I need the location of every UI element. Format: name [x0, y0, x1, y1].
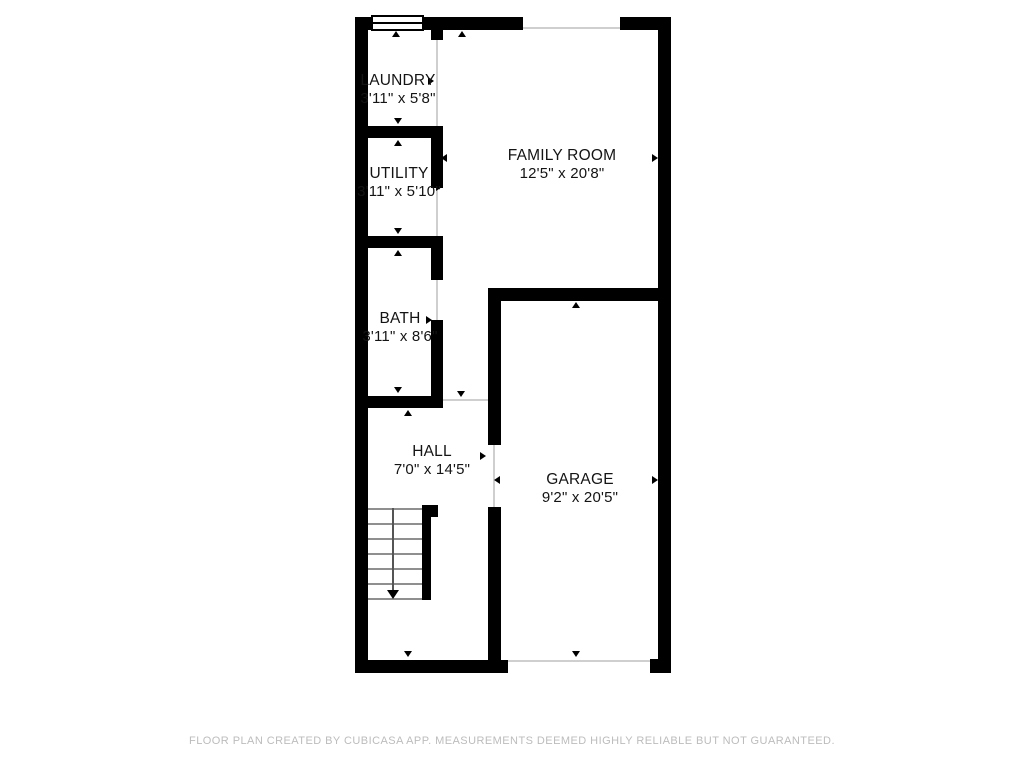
room-name: HALL	[347, 443, 517, 461]
room-name: BATH	[315, 310, 485, 328]
wall-garage-left-upper	[488, 288, 501, 445]
room-dimensions: 12'5" x 20'8"	[477, 165, 647, 183]
wall-outer-right	[658, 17, 671, 672]
wall-marker-icon	[394, 228, 402, 234]
floor-plan: LAUNDRY 3'11" x 5'8" UTILITY 3'11" x 5'1…	[0, 0, 1024, 768]
room-label-utility: UTILITY 3'11" x 5'10"	[314, 165, 484, 201]
window-symbol	[371, 15, 424, 31]
stair-tread	[368, 553, 422, 555]
wall-laundry-utility-divider	[355, 126, 435, 138]
room-label-family-room: FAMILY ROOM 12'5" x 20'8"	[477, 147, 647, 183]
wall-marker-icon	[394, 250, 402, 256]
wall-marker-icon	[404, 651, 412, 657]
measure-arrow-icon	[652, 154, 658, 162]
wall-bath-bottom	[355, 396, 443, 408]
wall-marker-icon	[572, 651, 580, 657]
wall-marker-icon	[404, 410, 412, 416]
room-label-laundry: LAUNDRY 3'11" x 5'8"	[313, 72, 483, 108]
window-pane-line	[373, 22, 422, 24]
room-name: FAMILY ROOM	[477, 147, 647, 165]
wall-outer-top-right-segment	[620, 17, 671, 30]
wall-marker-icon	[392, 31, 400, 37]
wall-garage-top	[488, 288, 671, 301]
wall-bath-right-upper	[431, 236, 443, 280]
stair-tread	[368, 523, 422, 525]
room-dimensions: 3'11" x 8'6"	[315, 328, 485, 346]
wall-marker-icon	[572, 302, 580, 308]
wall-marker-icon	[457, 391, 465, 397]
stair-tread	[368, 508, 422, 510]
stair-tread	[368, 538, 422, 540]
hall-opening-line	[443, 399, 488, 401]
room-name: UTILITY	[314, 165, 484, 183]
room-name: GARAGE	[495, 471, 665, 489]
measure-arrow-icon	[441, 154, 447, 162]
wall-marker-icon	[394, 387, 402, 393]
room-name: LAUNDRY	[313, 72, 483, 90]
entry-opening-line	[523, 27, 620, 29]
stair-direction-arrow-icon	[387, 590, 399, 599]
wall-utility-bath-divider	[355, 236, 435, 248]
wall-marker-icon	[394, 118, 402, 124]
room-dimensions: 3'11" x 5'8"	[313, 90, 483, 108]
stair-tread	[368, 583, 422, 585]
stair-tread	[368, 568, 422, 570]
room-label-bath: BATH 3'11" x 8'6"	[315, 310, 485, 346]
room-dimensions: 3'11" x 5'10"	[314, 183, 484, 201]
wall-laundry-right-stub	[431, 28, 443, 40]
footer-disclaimer: FLOOR PLAN CREATED BY CUBICASA APP. MEAS…	[0, 735, 1024, 747]
stair-direction-line	[392, 508, 394, 592]
garage-door-opening-line	[508, 660, 652, 662]
room-label-garage: GARAGE 9'2" x 20'5"	[495, 471, 665, 507]
wall-marker-icon	[458, 31, 466, 37]
wall-outer-bottom-left-segment	[355, 660, 508, 673]
room-label-hall: HALL 7'0" x 14'5"	[347, 443, 517, 479]
wall-marker-icon	[394, 140, 402, 146]
wall-stair-side	[422, 505, 431, 600]
wall-outer-bottom-right-corner	[650, 659, 671, 673]
room-dimensions: 9'2" x 20'5"	[495, 489, 665, 507]
room-dimensions: 7'0" x 14'5"	[347, 461, 517, 479]
wall-garage-left-lower	[488, 507, 501, 672]
